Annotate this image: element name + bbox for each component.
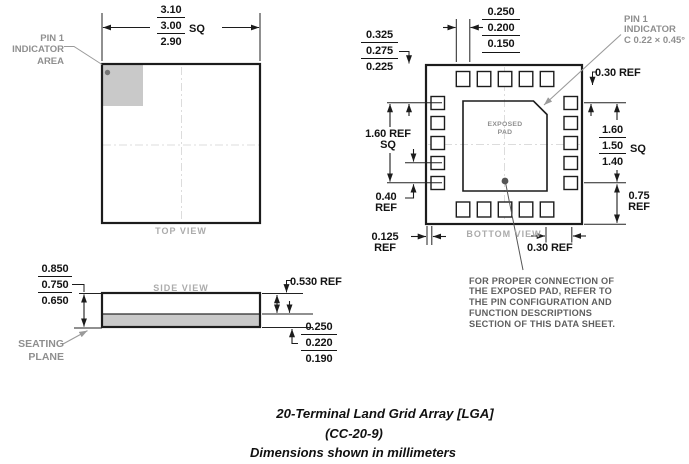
units-note: Dimensions shown in millimeters [228,445,478,460]
seating-plane-label: SEATING PLANE [12,338,64,363]
pin1-dot-icon [105,70,110,75]
pad-span-dim: 1.60 REF SQ [356,129,420,151]
exposed-pad-shape [463,101,547,191]
top-view-label: TOP VIEW [146,226,216,236]
side-view-label: SIDE VIEW [146,283,216,293]
pad-pitch-dim: 0.40 REF [369,192,403,214]
pin1-indicator-area-label: PIN 1 INDICATOR AREA [12,33,64,67]
top-view-size-dim: 3.10 3.00 2.90 SQ [157,2,185,50]
overall-height-dim: 0.850 0.750 0.650 [38,261,72,309]
substrate-thickness-dim: 0.250 0.220 0.190 [301,319,337,367]
bottom-view-label: BOTTOM VIEW [464,229,544,239]
exposed-pad-note: FOR PROPER CONNECTION OF THE EXPOSED PAD… [469,276,647,330]
bottom-offset-dim: 0.30 REF [527,242,573,254]
pin1-area-leader [64,47,102,65]
package-title: 20-Terminal Land Grid Array [LGA] [235,406,535,421]
edge-to-pad-dim: 0.325 0.275 0.225 [361,27,398,75]
dim-typ: 3.00 [157,18,185,34]
package-drawing: 3.10 3.00 2.90 SQ PIN 1 INDICATOR AREA T… [0,0,689,464]
exposed-pad-size-dim: 1.60 1.50 1.40 SQ [599,122,626,170]
exposed-pad-label: EXPOSED PAD [479,121,531,137]
seating-plane-leader [63,331,88,344]
edge-clearance-dim: 0.125 REF [366,232,404,254]
drawing-linework [0,0,689,464]
package-code: (CC-20-9) [294,426,414,441]
bottom-right-span-dim: 0.75 REF [624,191,654,213]
dim-max: 3.10 [157,2,185,18]
dim-suffix: SQ [189,23,205,35]
top-right-offset-dim: 0.30 REF [595,67,641,79]
mold-height-dim: 0.530 REF [290,276,342,288]
exposed-pad-dot-icon [502,178,509,185]
terminal-width-dim: 0.250 0.200 0.150 [482,4,520,53]
dim-min: 2.90 [157,34,185,49]
pin1-indicator-label: PIN 1 INDICATOR C 0.22 × 0.45° [624,15,685,46]
note-leader [506,184,523,270]
